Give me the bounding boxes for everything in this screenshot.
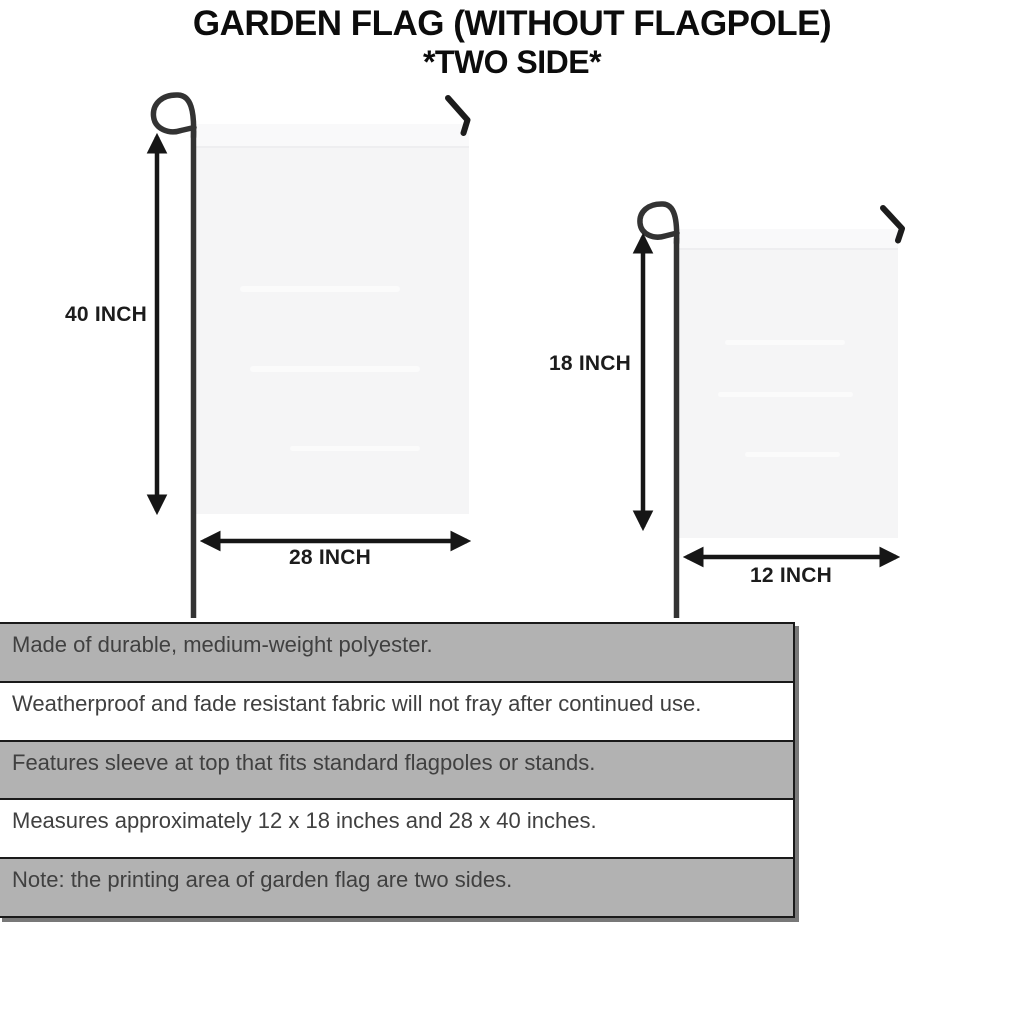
large-flag-height-label: 40 INCH (45, 303, 167, 327)
large-flag-width-label: 28 INCH (260, 546, 400, 570)
feature-row-weatherproof: Weatherproof and fade resistant fabric w… (0, 683, 793, 742)
small-flag-width-label: 12 INCH (720, 564, 862, 588)
large-flag-canvas (196, 124, 469, 514)
large-flag-diagram (153, 95, 469, 618)
small-flag-height-label: 18 INCH (529, 352, 651, 376)
large-flag-pole-loop (153, 95, 194, 137)
small-flag-canvas (678, 229, 898, 538)
feature-row-material: Made of durable, medium-weight polyester… (0, 624, 793, 683)
features-table: Made of durable, medium-weight polyester… (0, 622, 795, 918)
small-flag-sleeve (678, 229, 898, 248)
feature-row-note: Note: the printing area of garden flag a… (0, 859, 793, 916)
page: GARDEN FLAG (WITHOUT FLAGPOLE) *TWO SIDE… (0, 0, 1024, 1024)
feature-row-measurements: Measures approximately 12 x 18 inches an… (0, 800, 793, 859)
large-flag-sleeve (196, 124, 469, 146)
feature-row-sleeve: Features sleeve at top that fits standar… (0, 742, 793, 801)
small-flag-diagram (640, 204, 902, 618)
small-flag-pole-loop (640, 204, 677, 243)
